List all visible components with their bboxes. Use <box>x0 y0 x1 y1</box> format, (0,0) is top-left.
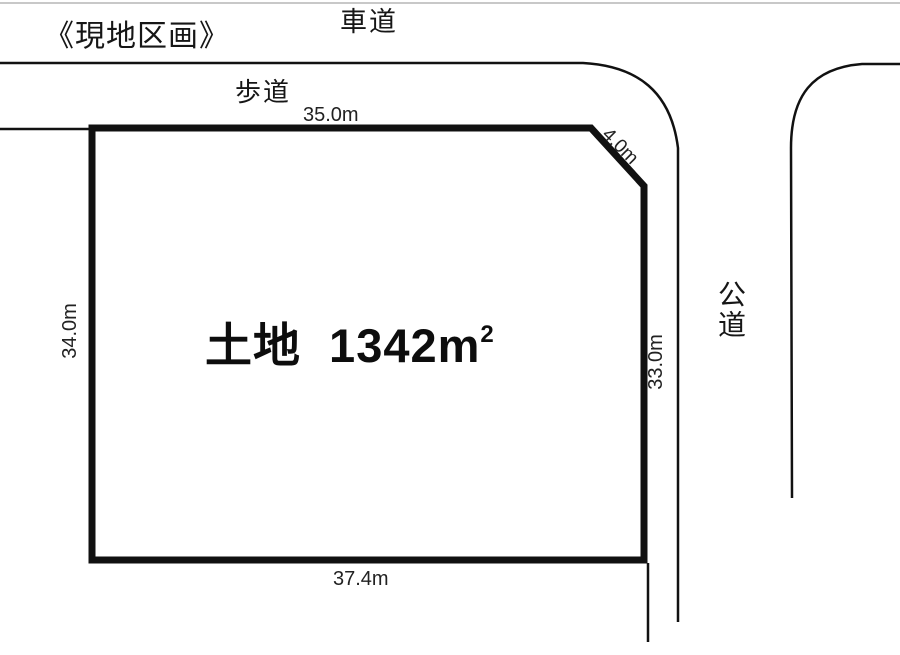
public-road-boundary-line <box>791 64 900 498</box>
roadway-label: 車道 <box>340 9 398 36</box>
plot-area-label: 土地 1342m2 <box>205 322 494 369</box>
sidewalk-label: 歩道 <box>235 79 291 105</box>
plot-area-text: 土地 1342m <box>205 319 480 372</box>
dimension-left: 34.0m <box>60 289 80 373</box>
land-plot-diagram: 《現地区画》 車道 歩道 公道 35.0m 4.0m 34.0m 33.0m 3… <box>0 0 900 655</box>
dimension-bottom: 37.4m <box>333 569 389 589</box>
public-road-label: 公道 <box>716 280 744 340</box>
page-title: 《現地区画》 <box>44 22 230 52</box>
dimension-top: 35.0m <box>303 105 359 125</box>
plot-area-exponent: 2 <box>480 321 493 348</box>
dimension-right: 33.0m <box>646 320 666 404</box>
